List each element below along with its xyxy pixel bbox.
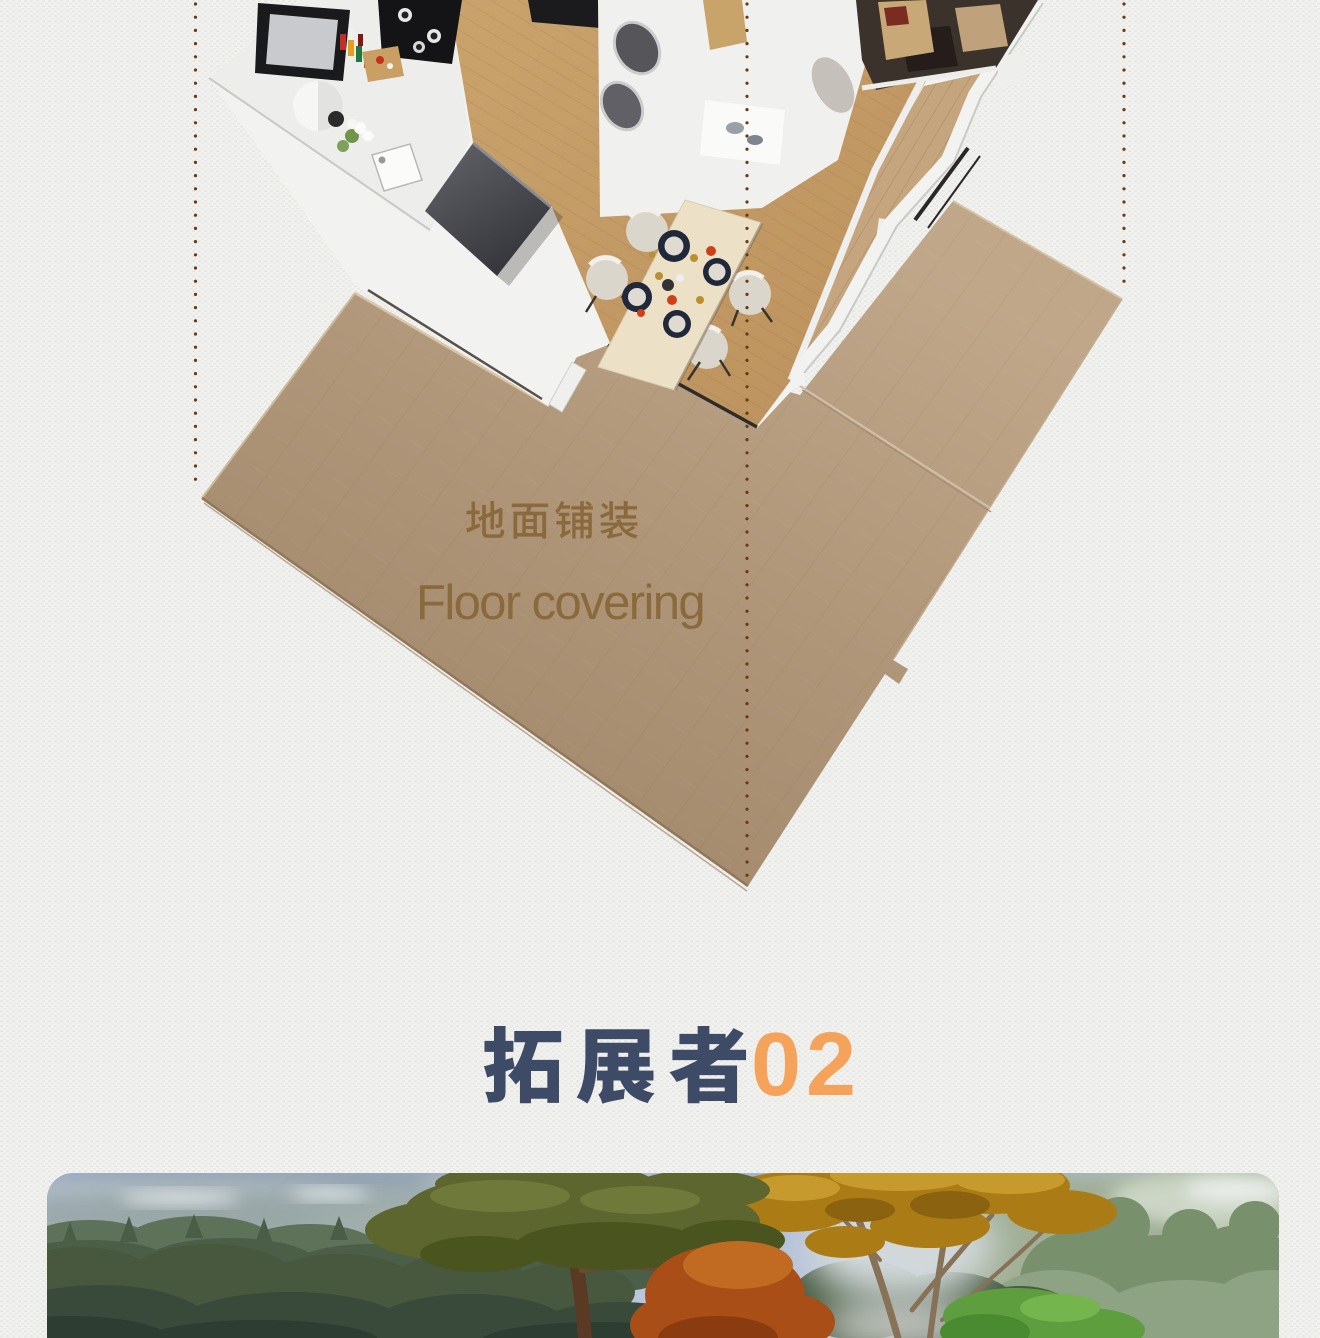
svg-text:Floor covering: Floor covering: [416, 576, 704, 630]
svg-text:02: 02: [751, 1015, 861, 1115]
